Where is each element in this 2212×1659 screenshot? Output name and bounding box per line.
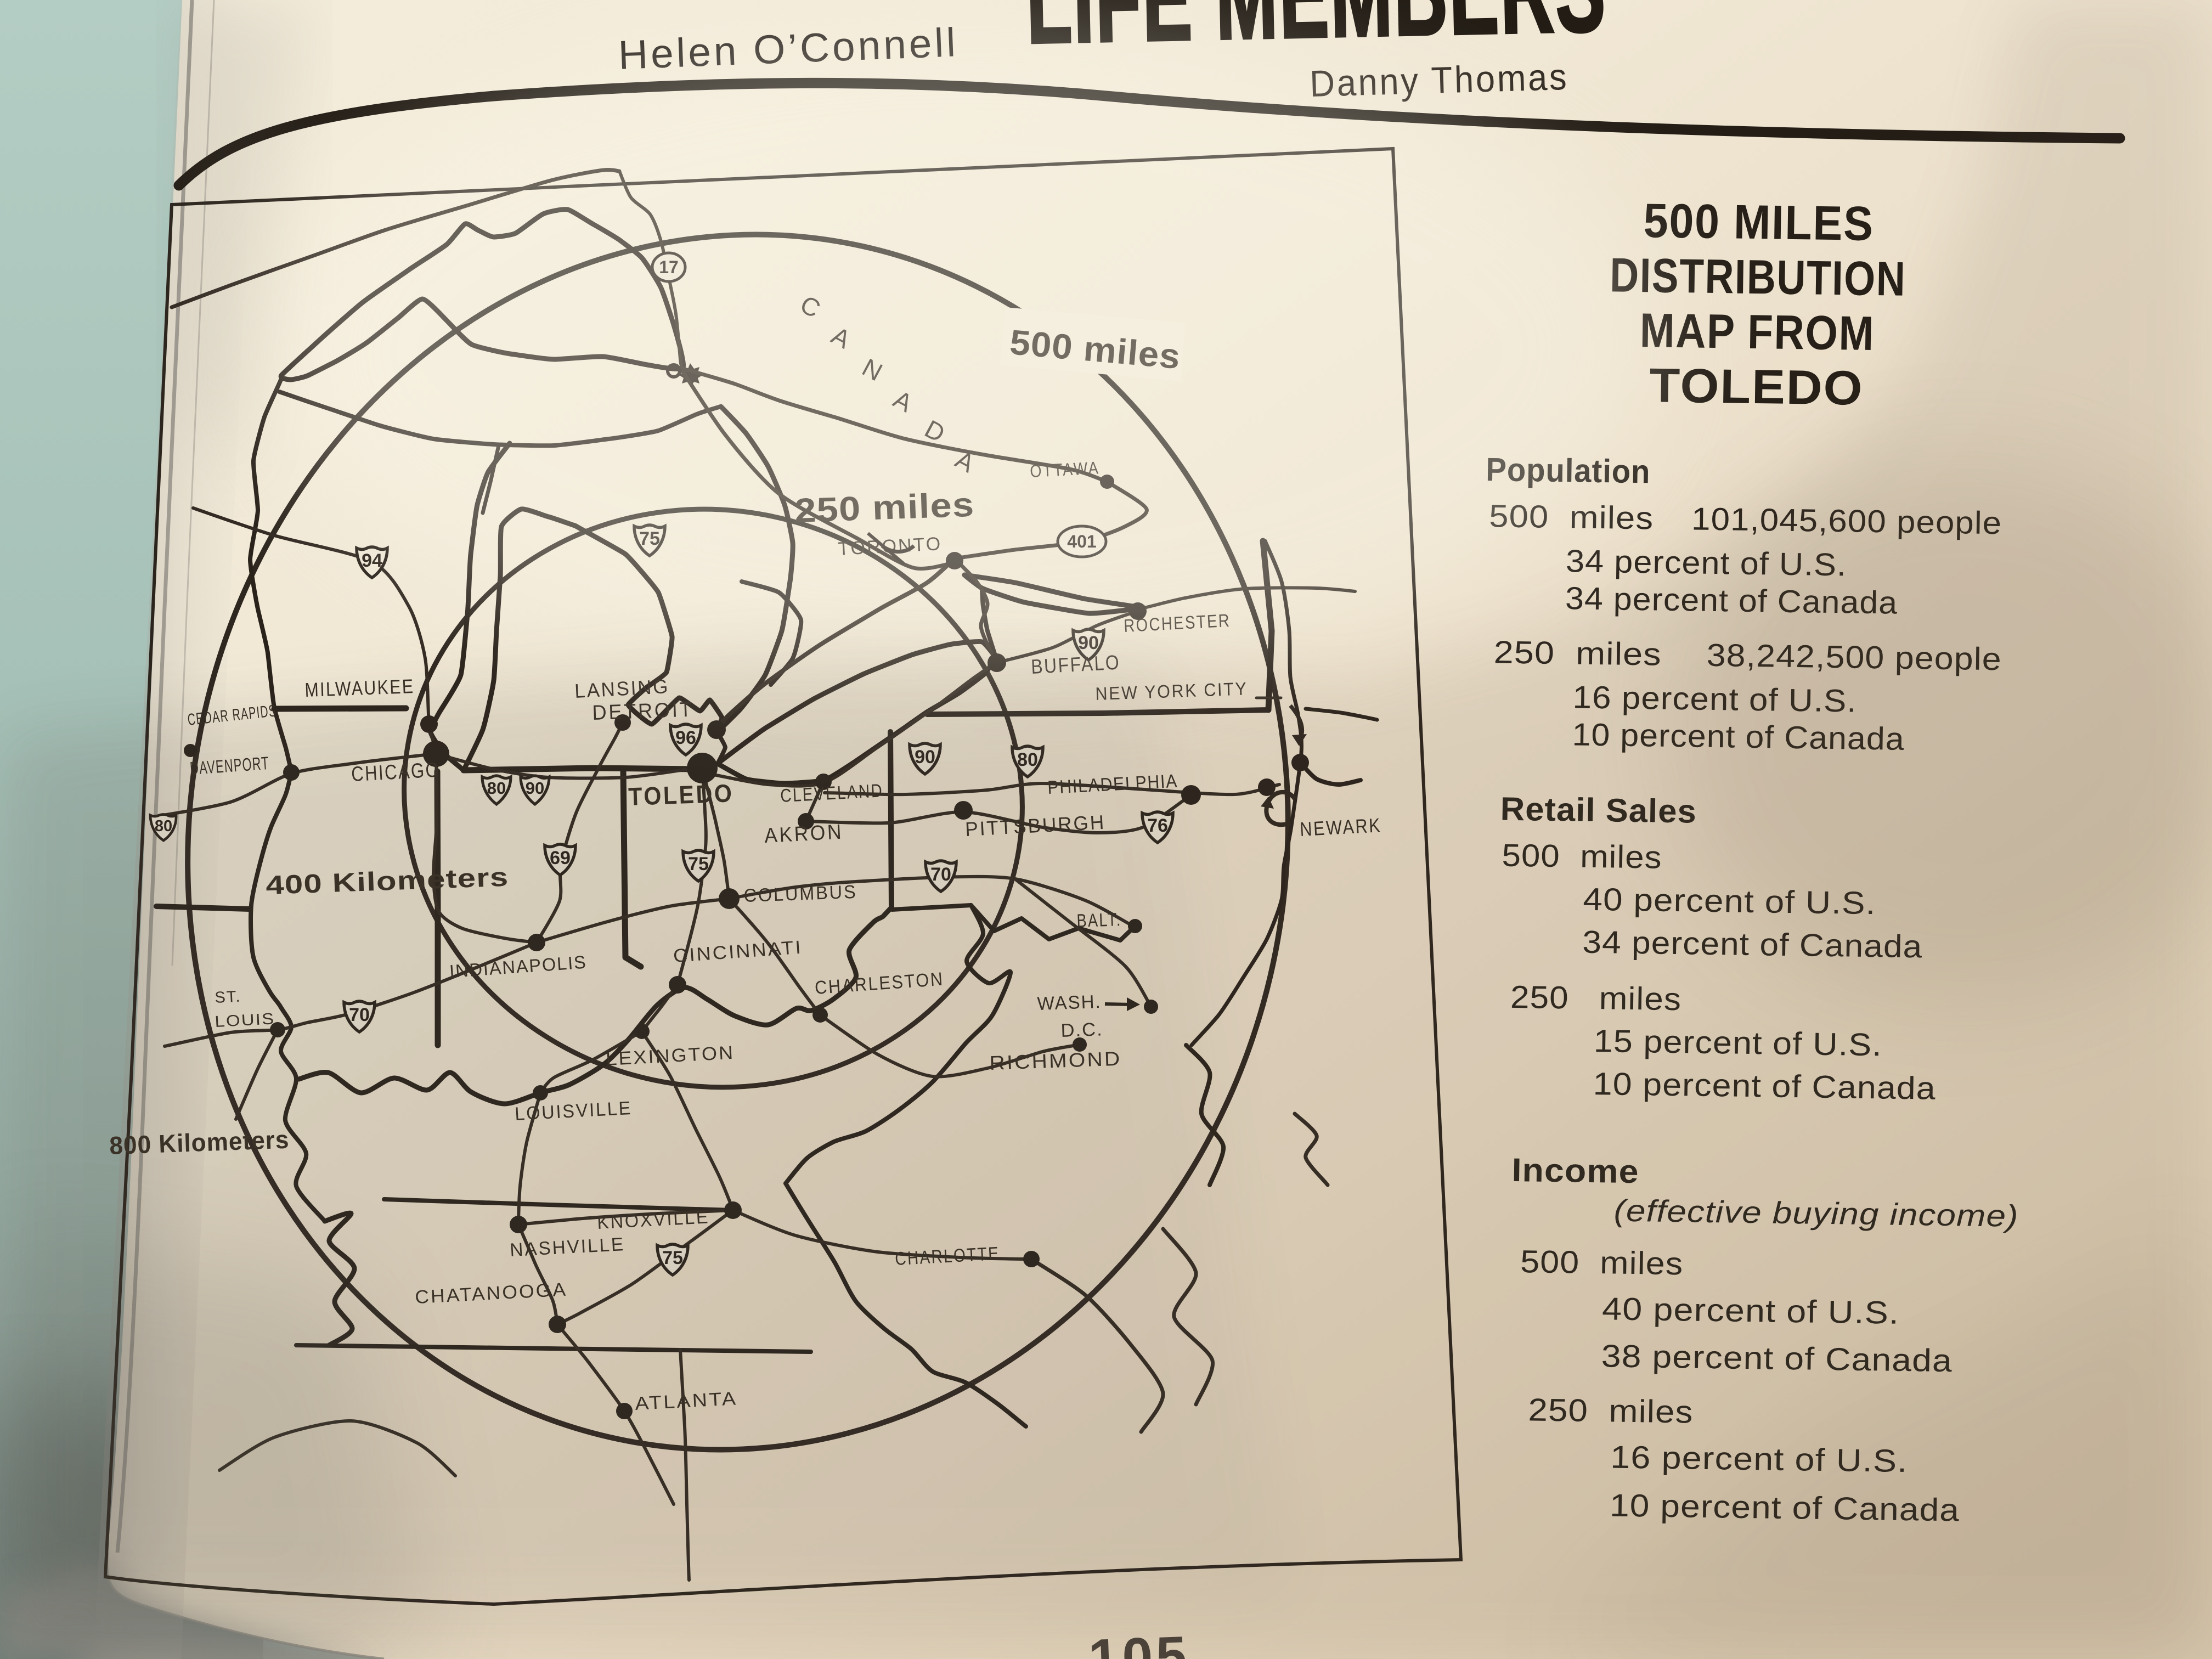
svg-text:500 MILES: 500 MILES [1643,193,1874,251]
svg-text:94: 94 [362,550,382,571]
svg-text:TOLEDO: TOLEDO [1649,358,1864,415]
svg-text:DISTRIBUTION: DISTRIBUTION [1610,247,1906,306]
svg-text:MAP FROM: MAP FROM [1639,303,1875,360]
